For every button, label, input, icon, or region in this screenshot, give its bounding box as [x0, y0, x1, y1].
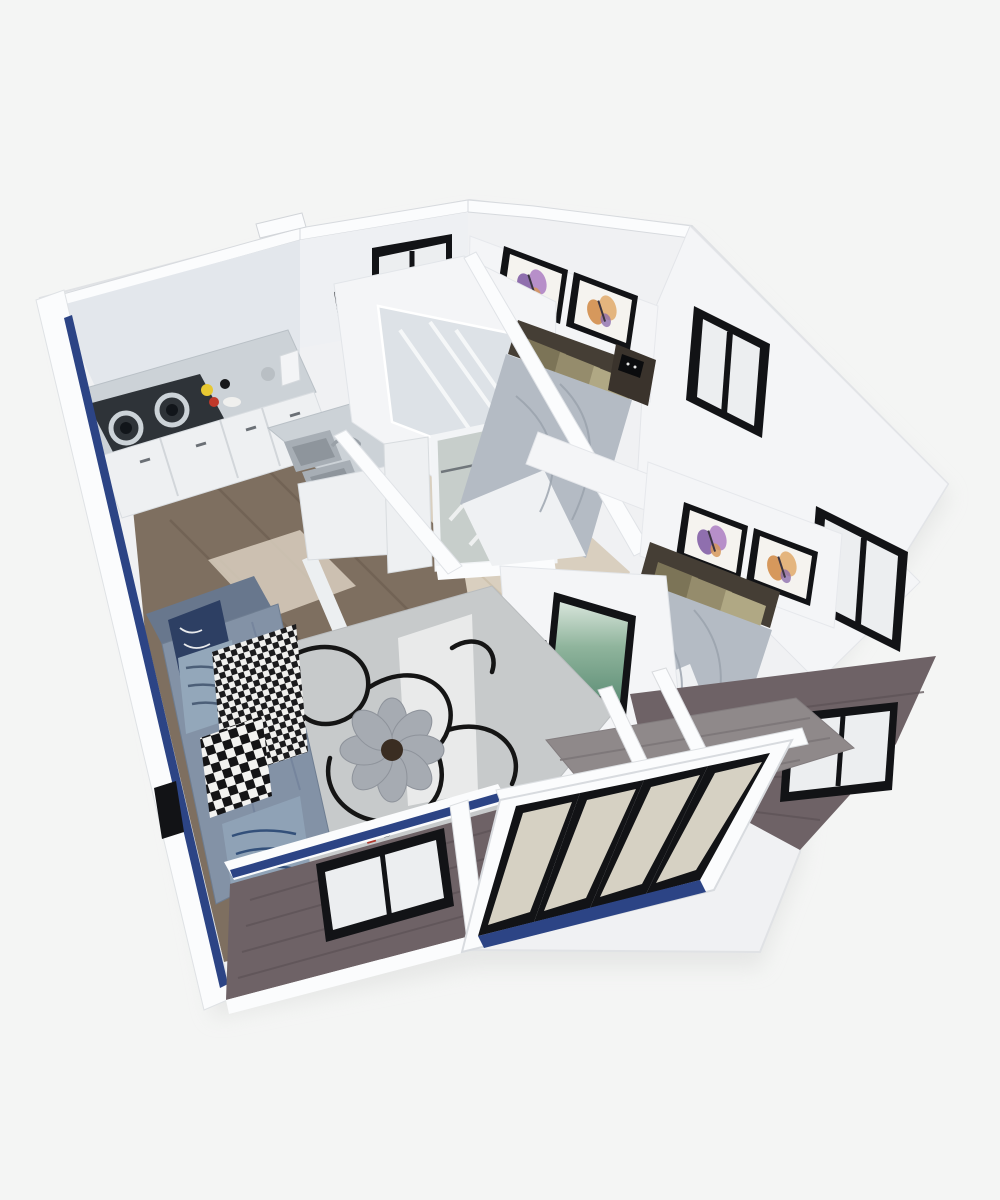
- canister: [280, 350, 300, 386]
- yellow-cup: [201, 384, 213, 396]
- gray-pot: [261, 367, 275, 381]
- red-dish: [209, 397, 219, 407]
- floorplan-3d-render: [0, 0, 1000, 1200]
- black-mug: [220, 379, 230, 389]
- pouf-center: [381, 739, 403, 761]
- white-plate: [223, 397, 241, 407]
- flower-pouf: [340, 698, 444, 802]
